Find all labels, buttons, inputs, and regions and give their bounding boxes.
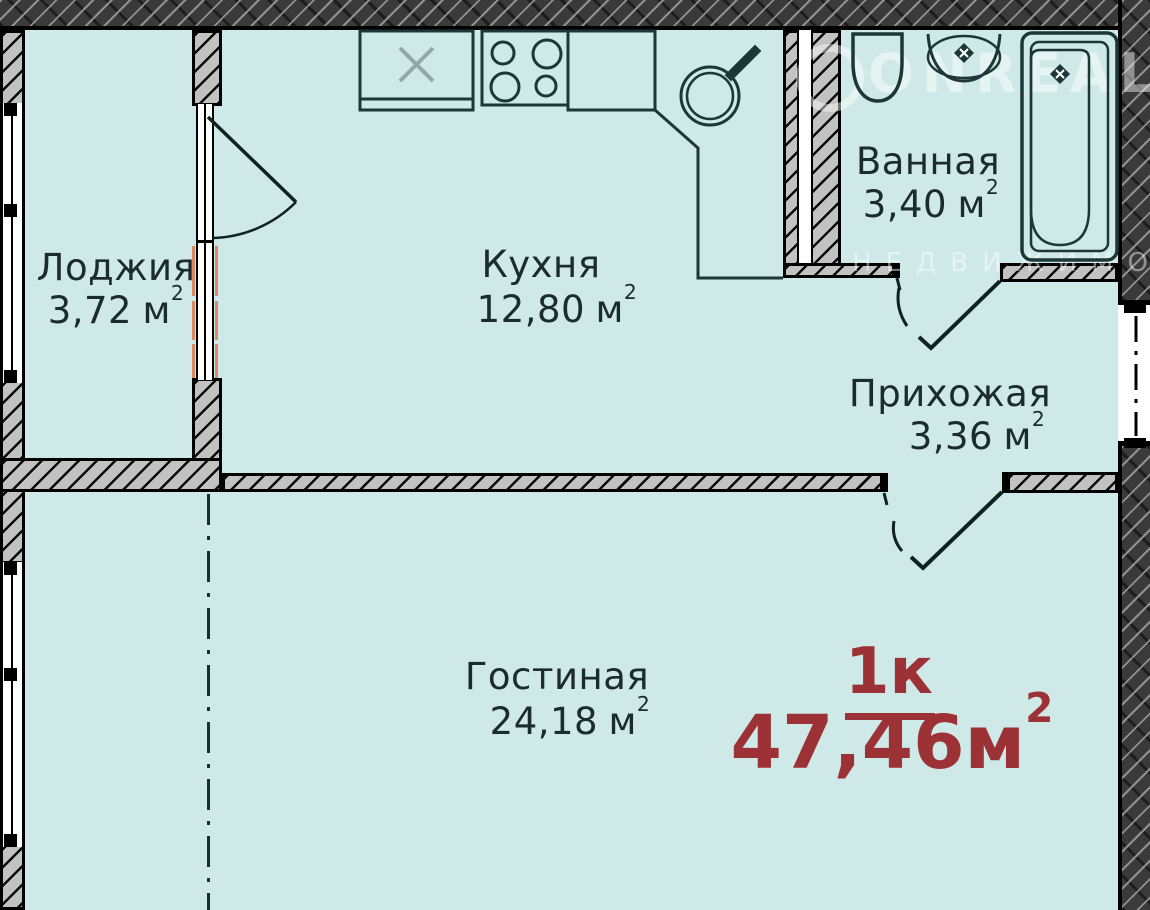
balcony-door (208, 117, 296, 238)
bathroom-sink (928, 34, 1000, 81)
floor-plan: ONREAL НЕДВИЖИМО (0, 0, 1150, 910)
sink-placeholder-cross-icon (400, 48, 433, 81)
apartment-type-label: 1к (845, 640, 933, 704)
toilet (853, 34, 902, 101)
axis-dash-dot-line (207, 494, 210, 910)
round-sink (681, 51, 755, 125)
bathroom-door (897, 278, 1000, 348)
stove (482, 31, 568, 105)
summary-underline (845, 713, 935, 720)
kitchen-counter (360, 31, 473, 110)
bathtub (1022, 33, 1117, 260)
corner-counter (568, 31, 783, 278)
entrance-opening (1124, 303, 1146, 448)
living-room-door (884, 492, 1002, 568)
